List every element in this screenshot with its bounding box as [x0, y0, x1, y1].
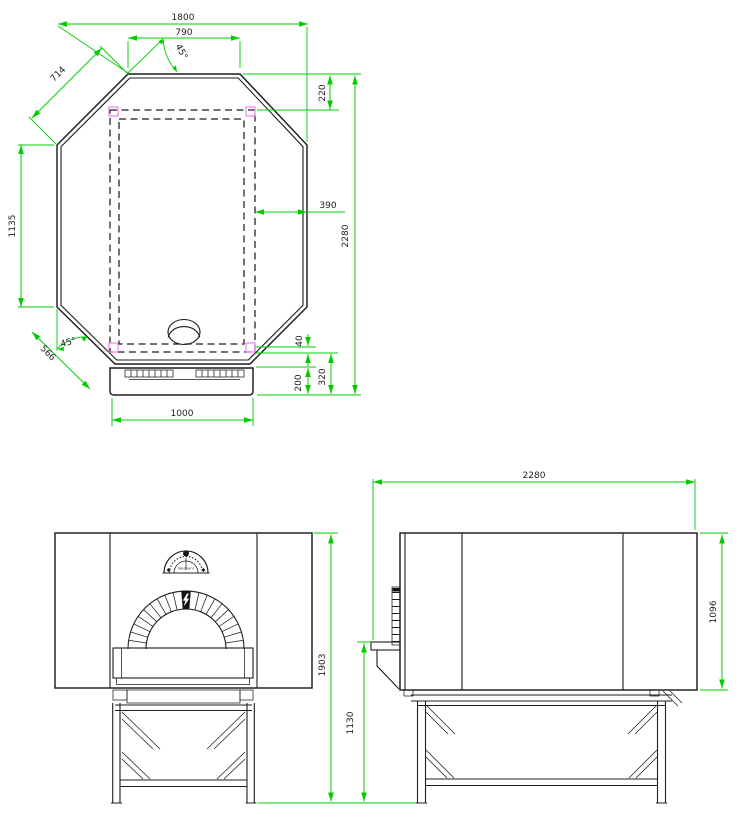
dim-wall-offset: 390 — [255, 201, 345, 212]
dim-label: 790 — [175, 28, 192, 38]
dim-landing-width: 1000 — [112, 409, 253, 420]
dim-overall-depth: 2280 — [341, 76, 355, 395]
dim-label: 1135 — [8, 215, 18, 238]
thermometer-gauge: Valoriani — [163, 551, 210, 574]
dim-body-height: 1096 — [709, 535, 722, 689]
dim-label: 1800 — [172, 13, 195, 23]
side-view: 2280 1096 — [357, 471, 728, 803]
dim-label: 45° — [59, 336, 77, 350]
dim-label: 1130 — [346, 711, 356, 734]
dim-total-height: 1903 — [318, 535, 331, 802]
extension-lines — [357, 479, 728, 690]
landing-plan — [110, 368, 253, 395]
octagon-outer-wall — [57, 74, 307, 364]
dim-top-offset-220: 220 — [318, 76, 330, 110]
top-view: 1800 790 45° 714 1135 45° 5 — [8, 13, 361, 426]
dim-label: 1000 — [171, 409, 194, 419]
anchor-marker — [246, 107, 255, 116]
landing-front — [113, 648, 253, 703]
stand-braces — [122, 712, 245, 779]
flue-circle — [168, 320, 200, 345]
stand-braces — [426, 705, 657, 778]
dim-label: 566 — [38, 344, 57, 363]
dim-landing-overall: 320 — [318, 354, 331, 394]
dim-overall-length: 2280 — [373, 471, 695, 482]
dim-label: 2280 — [523, 471, 546, 481]
front-view: Valoriani — [55, 533, 420, 803]
stand-front — [111, 703, 257, 803]
dim-label: 714 — [49, 65, 68, 84]
dim-label: 1903 — [318, 654, 328, 677]
dim-vent-gap: 40 — [295, 334, 308, 366]
dim-landing-depth: 200 — [294, 368, 308, 394]
gauge-top-mark — [183, 551, 189, 557]
stand-side — [411, 695, 672, 803]
octagon-inner-wall — [61, 78, 303, 360]
side-body-outline — [400, 533, 697, 690]
vent-bricks — [125, 370, 244, 380]
arch-bricks — [128, 591, 244, 649]
dim-front-angle: 45° — [128, 39, 189, 73]
dim-label: 40 — [295, 335, 305, 347]
body-feet — [404, 690, 682, 706]
extension-lines — [258, 533, 420, 803]
anchor-marker — [246, 343, 255, 352]
floor-dashed-outer — [110, 110, 255, 352]
side-body-panels — [405, 533, 623, 690]
dim-side-length: 1135 — [8, 145, 21, 307]
dim-label: 45° — [173, 43, 189, 62]
dim-label: 220 — [318, 84, 328, 101]
gauge-brand-label: Valoriani — [178, 567, 194, 571]
extension-lines — [18, 26, 361, 426]
dim-front-edge: 790 — [128, 28, 240, 38]
floor-dashed-inner — [119, 119, 244, 344]
arch-edge — [392, 587, 400, 645]
dim-overall-width: 1800 — [58, 13, 308, 24]
dim-label: 1096 — [709, 600, 719, 623]
shelf-side — [371, 642, 400, 689]
dim-label: 390 — [319, 201, 336, 211]
oven-technical-drawing: 1800 790 45° 714 1135 45° 5 — [0, 0, 741, 826]
dim-label: 2280 — [341, 224, 351, 247]
dim-label: 320 — [318, 368, 328, 385]
dim-rear-angle: 45° — [57, 336, 87, 351]
dim-label: 200 — [294, 374, 304, 391]
dim-stand-height: 1130 — [346, 644, 364, 802]
dim-front-chamfer: 714 — [32, 48, 102, 118]
